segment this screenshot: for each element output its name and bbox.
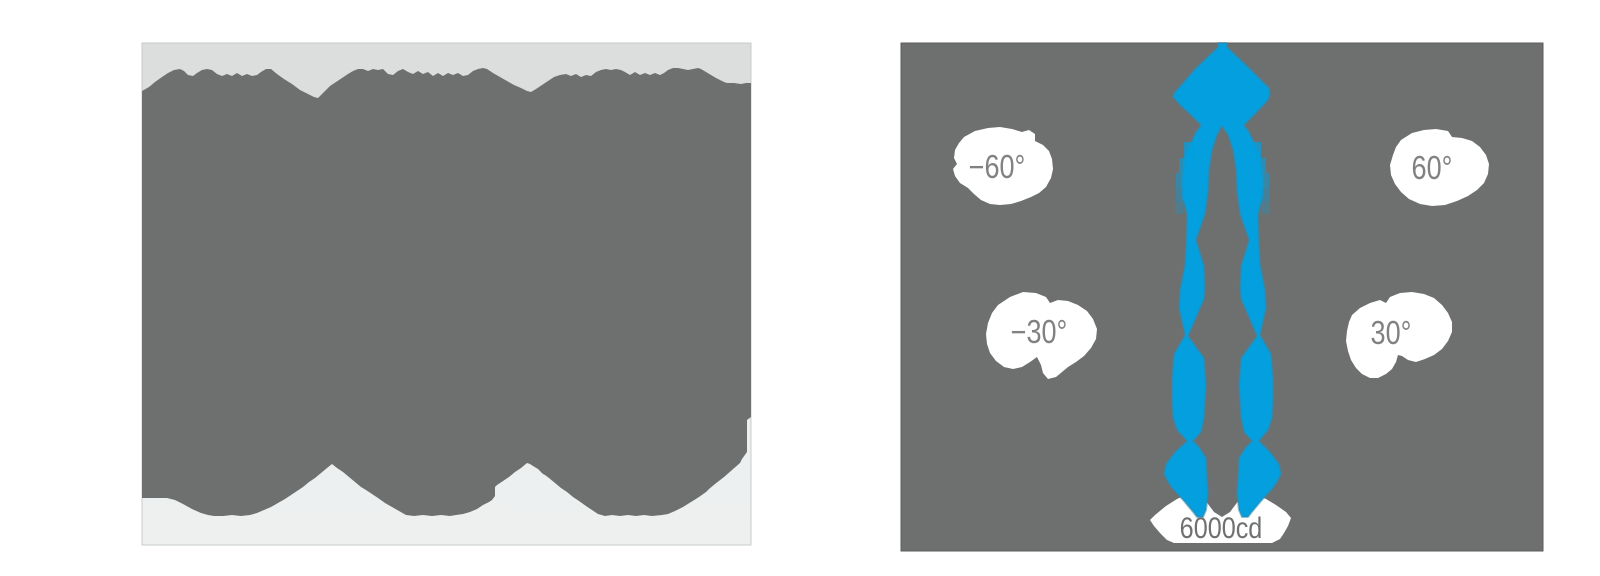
svg-text:6000cd: 6000cd — [1180, 511, 1263, 545]
svg-text:30°: 30° — [1371, 316, 1412, 352]
svg-text:−30°: −30° — [1011, 315, 1068, 351]
svg-text:60°: 60° — [1412, 151, 1453, 187]
svg-text:−60°: −60° — [969, 150, 1026, 186]
